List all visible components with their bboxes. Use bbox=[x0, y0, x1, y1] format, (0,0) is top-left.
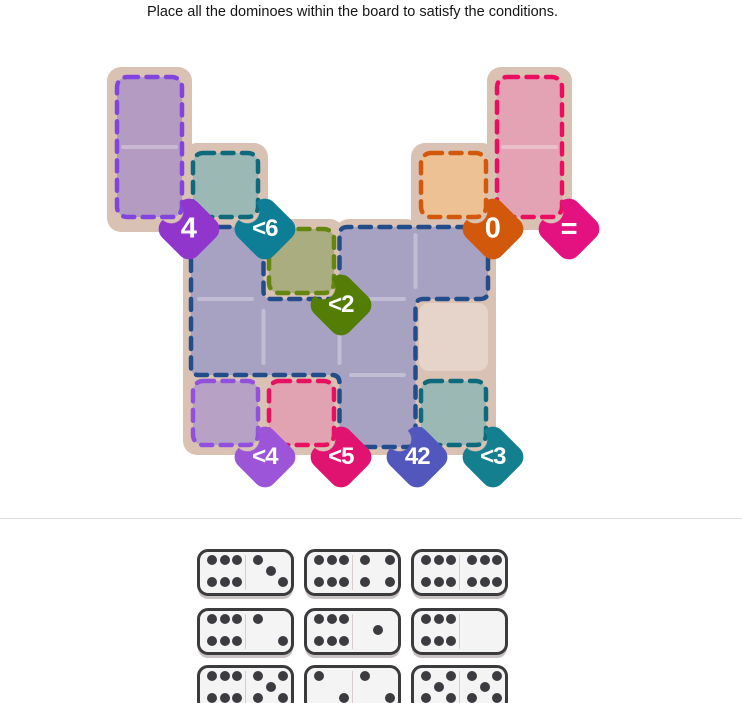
domino-6-5[interactable] bbox=[197, 665, 294, 703]
pip bbox=[314, 555, 324, 565]
pip bbox=[220, 636, 230, 646]
pip bbox=[253, 555, 263, 565]
pip bbox=[278, 636, 288, 646]
badge-label: = bbox=[561, 215, 577, 244]
pip bbox=[360, 577, 370, 587]
pip bbox=[207, 671, 217, 681]
pip bbox=[266, 566, 276, 576]
pip bbox=[220, 671, 230, 681]
domino-divider bbox=[352, 555, 353, 590]
pip bbox=[492, 577, 502, 587]
badge-label: <6 bbox=[252, 217, 277, 241]
pip bbox=[220, 555, 230, 565]
pip bbox=[266, 682, 276, 692]
tray-divider bbox=[0, 518, 742, 519]
pip bbox=[446, 693, 456, 703]
pip bbox=[467, 671, 477, 681]
pip bbox=[232, 577, 242, 587]
pip bbox=[232, 614, 242, 624]
domino-2-2[interactable] bbox=[304, 665, 401, 703]
pip bbox=[492, 671, 502, 681]
pip bbox=[278, 693, 288, 703]
badge-label: <4 bbox=[252, 445, 277, 469]
pip bbox=[446, 636, 456, 646]
region-lt-4[interactable] bbox=[193, 381, 258, 445]
pip bbox=[434, 555, 444, 565]
domino-6-3[interactable] bbox=[197, 549, 294, 596]
pip bbox=[467, 693, 477, 703]
pip bbox=[385, 555, 395, 565]
pip bbox=[232, 693, 242, 703]
pip bbox=[467, 577, 477, 587]
pip bbox=[421, 577, 431, 587]
pip bbox=[220, 614, 230, 624]
domino-divider bbox=[459, 555, 460, 590]
pip bbox=[278, 577, 288, 587]
pip bbox=[446, 671, 456, 681]
domino-6-4[interactable] bbox=[304, 549, 401, 596]
pip bbox=[421, 636, 431, 646]
pip bbox=[360, 671, 370, 681]
pip bbox=[207, 614, 217, 624]
pip bbox=[421, 614, 431, 624]
pip bbox=[220, 693, 230, 703]
pip bbox=[339, 577, 349, 587]
pip bbox=[327, 614, 337, 624]
pip bbox=[421, 555, 431, 565]
domino-divider bbox=[352, 614, 353, 649]
pip bbox=[480, 555, 490, 565]
board bbox=[0, 0, 742, 703]
pip bbox=[434, 577, 444, 587]
pip bbox=[480, 577, 490, 587]
domino-divider bbox=[245, 555, 246, 590]
domino-6-2[interactable] bbox=[197, 608, 294, 655]
pip bbox=[339, 636, 349, 646]
pip bbox=[253, 614, 263, 624]
pip bbox=[446, 577, 456, 587]
pip bbox=[385, 693, 395, 703]
pip bbox=[220, 577, 230, 587]
domino-divider bbox=[352, 671, 353, 703]
pip bbox=[360, 555, 370, 565]
pip bbox=[314, 671, 324, 681]
pip bbox=[207, 555, 217, 565]
pip bbox=[339, 614, 349, 624]
badge-label: 42 bbox=[405, 445, 430, 469]
domino-divider bbox=[245, 671, 246, 703]
pip bbox=[434, 682, 444, 692]
pip bbox=[253, 671, 263, 681]
domino-6-0[interactable] bbox=[411, 608, 508, 655]
domino-divider bbox=[459, 614, 460, 649]
pip bbox=[446, 614, 456, 624]
domino-5-5[interactable] bbox=[411, 665, 508, 703]
pip bbox=[314, 614, 324, 624]
badge-label: 0 bbox=[485, 214, 500, 243]
badge-label: 4 bbox=[181, 214, 196, 243]
pip bbox=[232, 636, 242, 646]
domino-divider bbox=[459, 671, 460, 703]
pip bbox=[385, 577, 395, 587]
pip bbox=[207, 693, 217, 703]
pip bbox=[207, 577, 217, 587]
pip bbox=[327, 636, 337, 646]
pip bbox=[434, 614, 444, 624]
pip bbox=[327, 577, 337, 587]
domino-divider bbox=[245, 614, 246, 649]
pip bbox=[492, 555, 502, 565]
pip bbox=[327, 555, 337, 565]
pip bbox=[314, 577, 324, 587]
pip bbox=[373, 625, 383, 635]
pip bbox=[421, 693, 431, 703]
puzzle-page: Place all the dominoes within the board … bbox=[0, 0, 742, 703]
pip bbox=[232, 555, 242, 565]
pip bbox=[339, 693, 349, 703]
pip bbox=[467, 555, 477, 565]
pip bbox=[421, 671, 431, 681]
badge-label: <5 bbox=[328, 445, 353, 469]
region-sum-0[interactable] bbox=[421, 153, 486, 217]
badge-label: <2 bbox=[328, 293, 353, 317]
pip bbox=[434, 636, 444, 646]
pip bbox=[207, 636, 217, 646]
domino-6-6[interactable] bbox=[411, 549, 508, 596]
pip bbox=[314, 636, 324, 646]
board-cell[interactable] bbox=[419, 303, 488, 371]
pip bbox=[339, 555, 349, 565]
domino-6-1[interactable] bbox=[304, 608, 401, 655]
pip bbox=[253, 693, 263, 703]
pip bbox=[232, 671, 242, 681]
pip bbox=[278, 671, 288, 681]
pip bbox=[446, 555, 456, 565]
badge-label: <3 bbox=[480, 445, 505, 469]
pip bbox=[492, 693, 502, 703]
pip bbox=[480, 682, 490, 692]
